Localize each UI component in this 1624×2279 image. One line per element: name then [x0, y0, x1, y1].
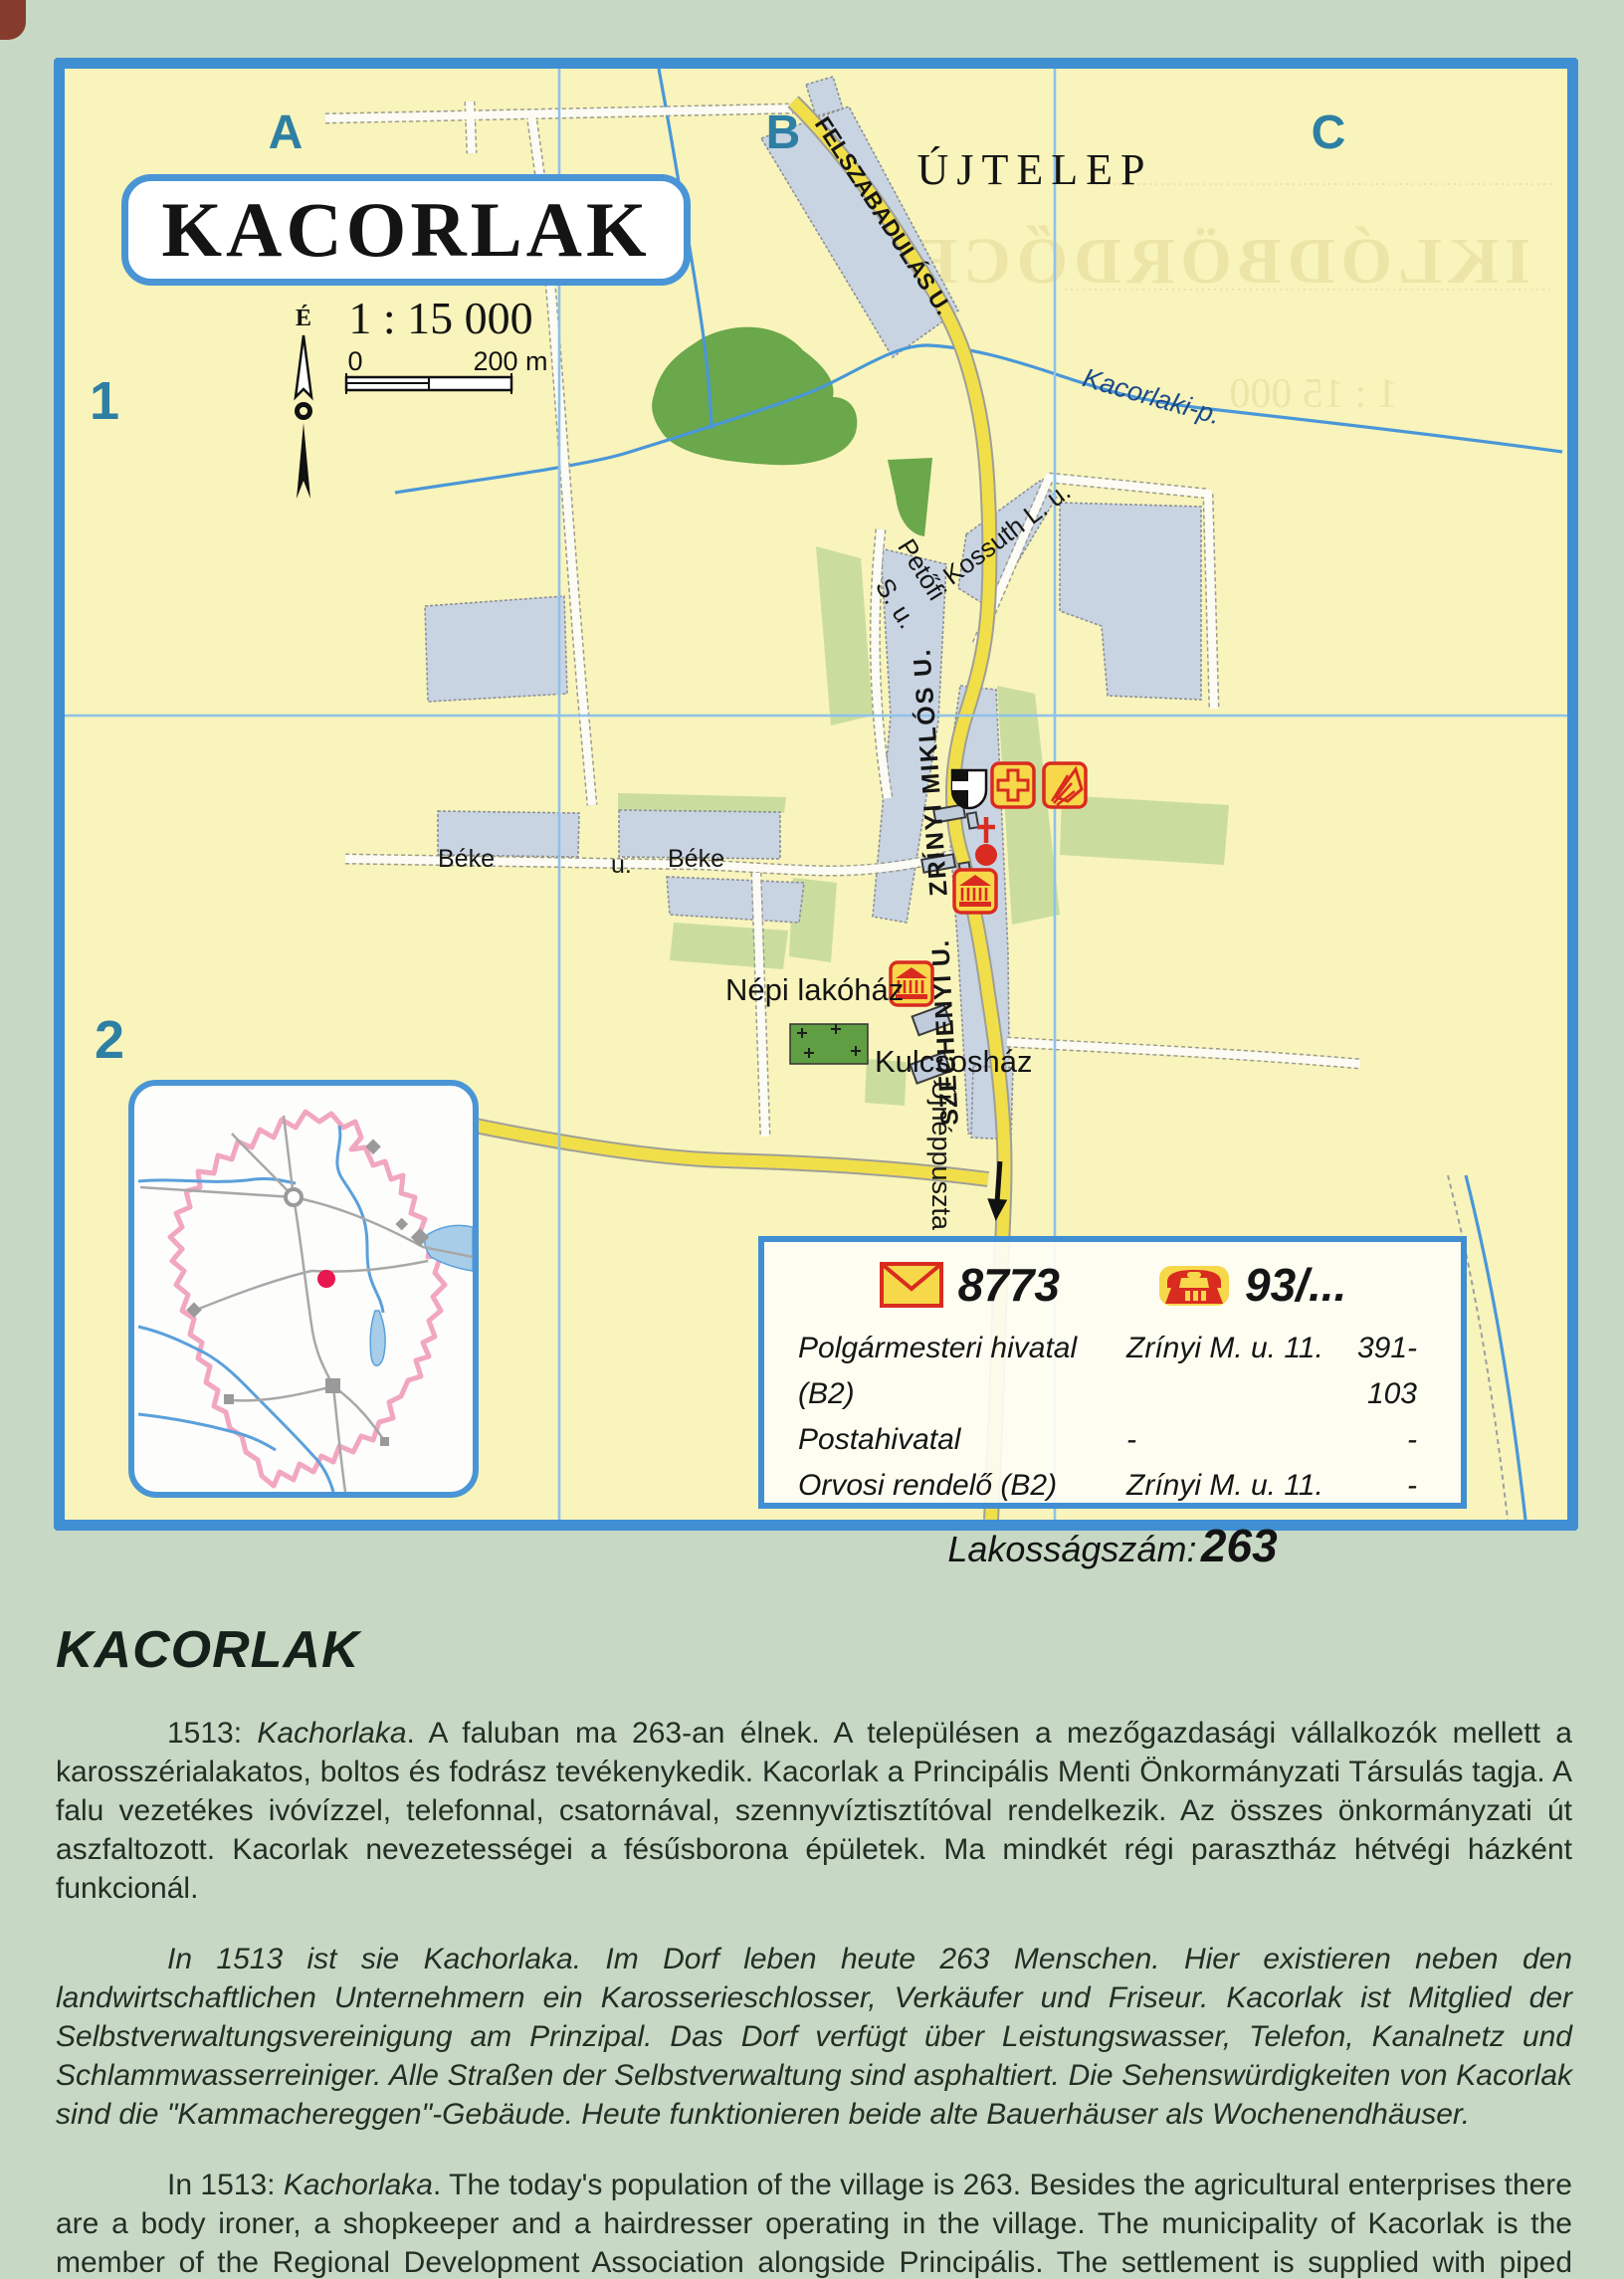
population-line: Lakosságszám: 263 — [764, 1519, 1461, 1572]
description-section: KACORLAK 1513: Kachorlaka. A faluban ma … — [56, 1620, 1572, 2279]
population-label: Lakosságszám: — [947, 1529, 1196, 1569]
grid-label-1: 1 — [90, 371, 119, 431]
p1-historic-name: Kachorlaka — [257, 1717, 406, 1750]
facility-phone: 391-103 — [1355, 1326, 1431, 1417]
scale-zero: 0 — [347, 346, 362, 376]
p2-intro: In 1513 ist sie — [167, 1943, 424, 1975]
envelope-icon — [879, 1261, 944, 1309]
village-map: IKLÓDBÖRDŐCE 1 : 15 000 — [54, 58, 1578, 1531]
medical-cross-icon — [992, 763, 1034, 807]
poi-label-kulcsoshaz: Kulcsosház — [875, 1044, 1033, 1079]
facility-phone: - — [1355, 1463, 1431, 1509]
facility-name: Polgármesteri hivatal (B2) — [798, 1326, 1126, 1417]
grid-label-2: 2 — [95, 1010, 124, 1070]
street-label-beke-u: u. — [611, 851, 632, 879]
street-label-beke-2: Béke — [668, 845, 724, 873]
inset-canvas — [134, 1086, 473, 1492]
map-title: KACORLAK — [161, 185, 650, 275]
place-label-ujneppuszta: Újnéppuszta — [926, 1081, 957, 1231]
info-row: Polgármesteri hivatal (B2) Zrínyi M. u. … — [798, 1326, 1431, 1417]
facility-phone: - — [1355, 1417, 1431, 1463]
scale-max: 200 m — [473, 346, 547, 376]
street-label-beke: Béke — [438, 845, 495, 873]
info-row: Orvosi rendelő (B2) Zrínyi M. u. 11. - — [798, 1463, 1431, 1509]
p3-intro: In 1513: — [167, 2169, 284, 2201]
sight-harrow-icon — [1044, 763, 1086, 807]
grid-label-a: A — [269, 106, 304, 159]
bleed-through-text: IKLÓDBÖRDŐCE 1 : 15 000 — [908, 184, 1552, 417]
p2-historic-name: Kachorlaka — [424, 1943, 573, 1975]
info-header: 8773 93/... — [764, 1258, 1461, 1312]
poi-label-nepi-lakohaz: Népi lakóház — [725, 972, 904, 1007]
grid-label-b: B — [766, 106, 801, 159]
scale-bar: 1 : 15 000 0 200 m — [346, 293, 548, 394]
inset-rivers — [138, 1126, 383, 1492]
p3-historic-name: Kachorlaka — [284, 2169, 433, 2201]
paragraph-german: In 1513 ist sie Kachorlaka. Im Dorf lebe… — [56, 1940, 1572, 2134]
museum-icon — [954, 870, 996, 913]
info-row: Postahivatal - - — [798, 1417, 1431, 1463]
district-label-ujtelep: ÚJTELEP — [917, 145, 1153, 194]
p1-intro: 1513: — [167, 1717, 257, 1750]
north-compass-icon: É — [295, 306, 312, 499]
scale-ratio: 1 : 15 000 — [348, 293, 532, 343]
facility-address: - — [1126, 1417, 1355, 1463]
ghost-scale-text: 1 : 15 000 — [1229, 371, 1397, 417]
county-inset-map — [128, 1080, 479, 1498]
phone-prefix: 93/... — [1245, 1258, 1346, 1312]
population-value: 263 — [1201, 1520, 1278, 1571]
grid-label-c: C — [1312, 106, 1346, 159]
ghost-title-text: IKLÓDBÖRDŐCE — [908, 225, 1530, 298]
postal-code: 8773 — [958, 1258, 1060, 1312]
facility-address: Zrínyi M. u. 11. — [1126, 1326, 1355, 1417]
stream-label: Kacorlaki-p. — [1080, 362, 1224, 430]
info-rows: Polgármesteri hivatal (B2) Zrínyi M. u. … — [798, 1326, 1431, 1509]
paragraph-english: In 1513: Kachorlaka. The today's populat… — [56, 2166, 1572, 2279]
inset-roads — [140, 1116, 473, 1492]
cemetery — [790, 1024, 868, 1064]
facility-address: Zrínyi M. u. 11. — [1126, 1463, 1355, 1509]
municipal-info-box: 8773 93/... Polgármesteri hivatal (B2) Z… — [758, 1236, 1467, 1509]
scan-corner-artifact — [0, 0, 26, 40]
paragraph-hungarian: 1513: Kachorlaka. A faluban ma 263-an él… — [56, 1714, 1572, 1908]
article-heading: KACORLAK — [56, 1620, 1572, 1680]
town-hall-shield-icon — [952, 770, 986, 808]
facility-name: Postahivatal — [798, 1417, 1126, 1463]
facility-name: Orvosi rendelő (B2) — [798, 1463, 1126, 1509]
scanned-map-page: IKLÓDBÖRDŐCE 1 : 15 000 — [0, 0, 1624, 2279]
map-title-box: KACORLAK — [121, 174, 691, 286]
phone-icon — [1157, 1260, 1231, 1310]
north-label: É — [296, 306, 311, 331]
location-dot — [317, 1270, 335, 1288]
